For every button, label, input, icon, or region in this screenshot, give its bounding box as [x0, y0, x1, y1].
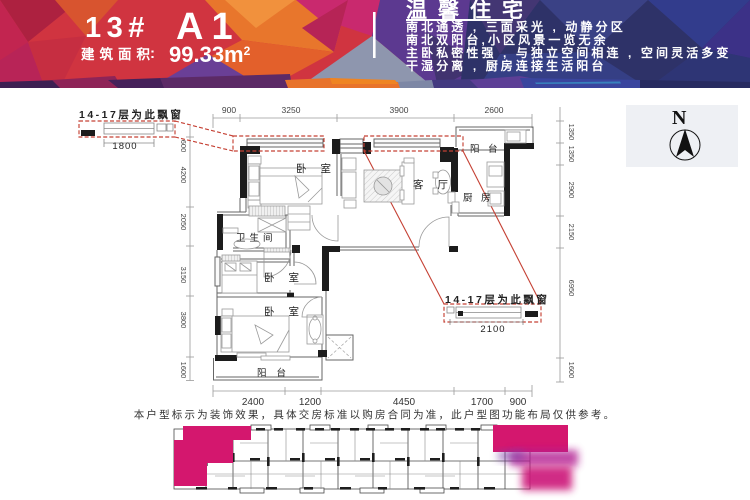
svg-text:厨房: 厨房	[463, 192, 499, 204]
svg-text:3800: 3800	[179, 312, 188, 329]
svg-text:4200: 4200	[179, 167, 188, 184]
svg-text:14-17层为此飘窗: 14-17层为此飘窗	[445, 293, 549, 306]
svg-text:14-17层为此飘窗: 14-17层为此飘窗	[79, 108, 183, 121]
svg-text:卧室: 卧室	[264, 305, 313, 318]
svg-text:3250: 3250	[282, 105, 301, 115]
svg-text:卧室: 卧室	[296, 162, 345, 175]
svg-text:2600: 2600	[485, 105, 504, 115]
svg-text:2100: 2100	[480, 324, 505, 335]
svg-text:1600: 1600	[567, 362, 576, 379]
svg-text:卫生间: 卫生间	[236, 232, 277, 244]
svg-text:600: 600	[179, 140, 188, 153]
svg-text:阳台: 阳台	[257, 367, 296, 379]
svg-text:3150: 3150	[179, 267, 188, 284]
svg-text:卧室: 卧室	[264, 271, 313, 284]
svg-text:900: 900	[222, 105, 236, 115]
svg-text:1600: 1600	[179, 362, 188, 379]
svg-text:3900: 3900	[390, 105, 409, 115]
svg-text:6950: 6950	[567, 280, 576, 297]
svg-text:客厅: 客厅	[413, 178, 462, 191]
svg-text:2150: 2150	[567, 224, 576, 241]
svg-text:2050: 2050	[179, 214, 188, 231]
svg-text:1800: 1800	[112, 141, 137, 152]
svg-text:1350: 1350	[567, 146, 576, 163]
svg-text:2900: 2900	[567, 182, 576, 199]
svg-text:1350: 1350	[567, 124, 576, 141]
svg-text:阳台: 阳台	[470, 143, 506, 155]
